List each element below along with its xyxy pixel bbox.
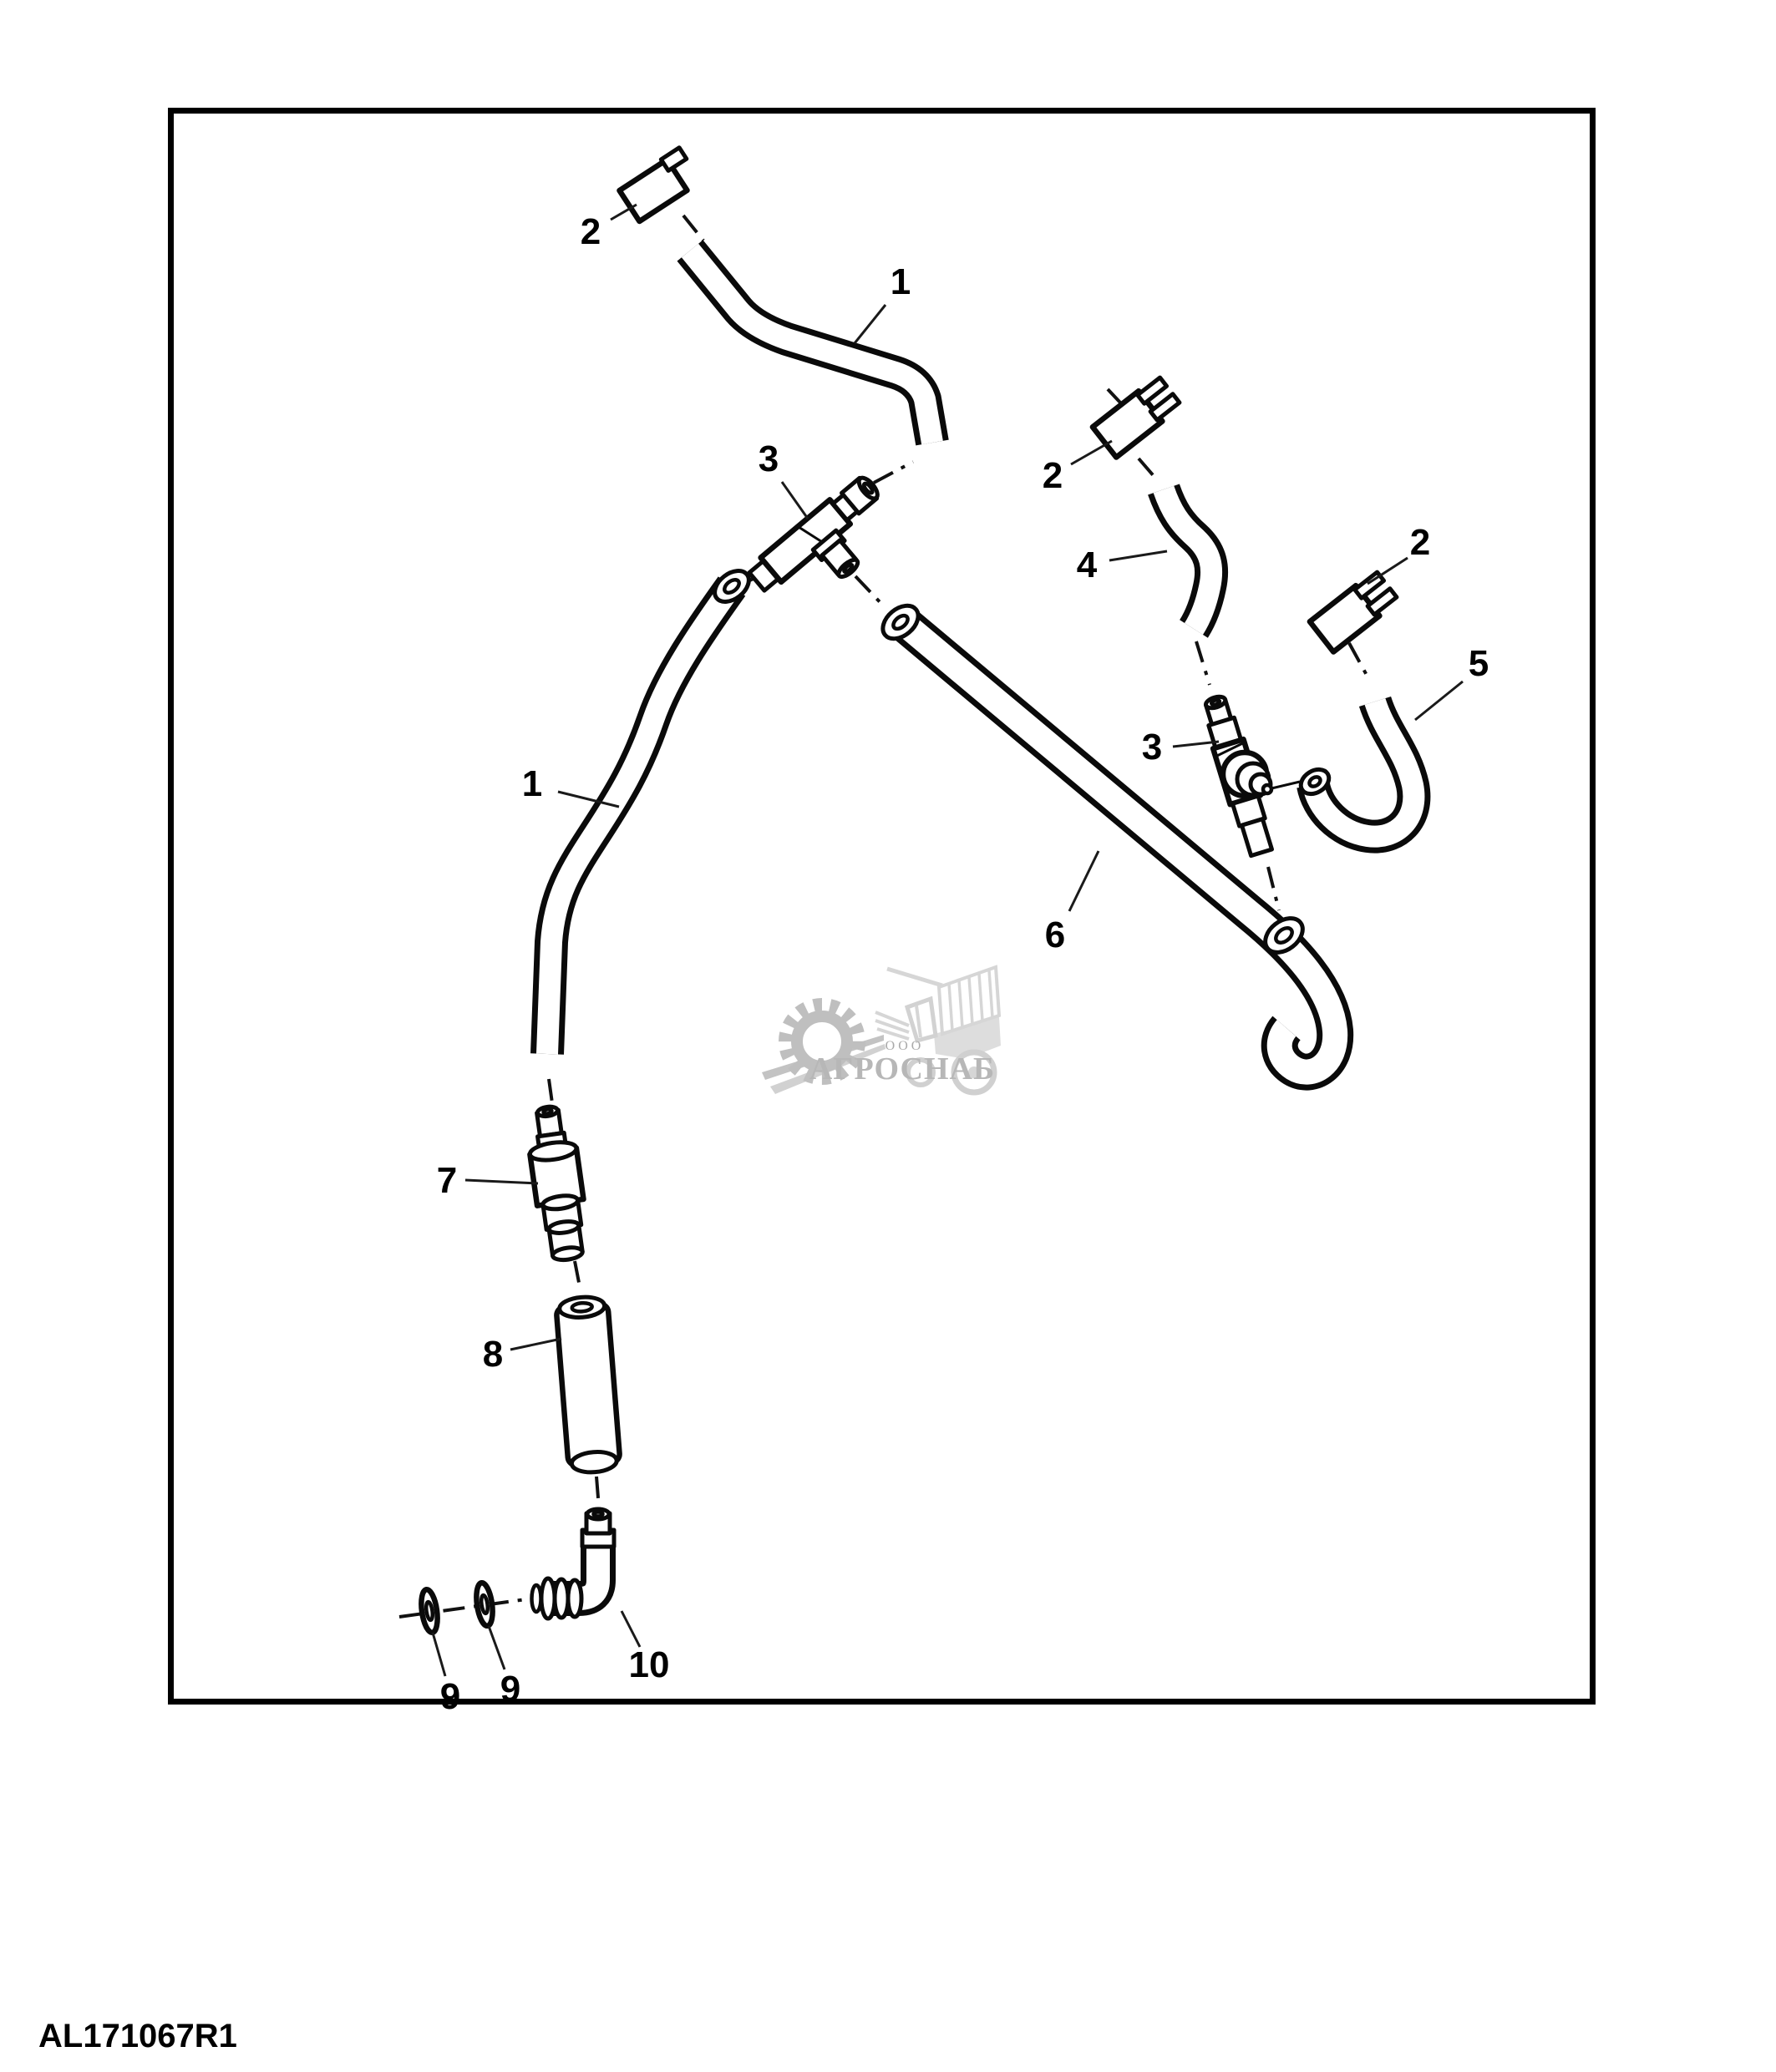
- dash-dot-line: [575, 1261, 581, 1291]
- cab-window-line: [916, 1006, 921, 1037]
- tee-bottom-stub: [1242, 819, 1272, 856]
- branch-connection-line: [1271, 782, 1300, 788]
- callout-4: 4: [1077, 545, 1098, 585]
- clip-body: [620, 160, 688, 221]
- callout-3-right: 3: [1142, 727, 1162, 768]
- callout-10: 10: [629, 1644, 670, 1685]
- elbow-top-bore: [594, 1512, 603, 1517]
- callout-1-upper: 1: [891, 261, 911, 302]
- hose-outline: [547, 586, 732, 1054]
- hose-5-hook: [1296, 702, 1414, 837]
- tee-tip-bore: [1211, 699, 1220, 706]
- elbow-port-opening: [532, 1585, 541, 1612]
- parts-diagram-page: ООО АГРОСНАБ: [0, 0, 1776, 2072]
- drawing-number: AL171067R1: [38, 2018, 237, 2054]
- hose-fill: [547, 586, 732, 1054]
- branch-tip: [1263, 785, 1271, 793]
- callout-7: 7: [437, 1160, 457, 1201]
- callout-2-top: 2: [581, 211, 601, 252]
- bin-slat: [989, 970, 992, 1017]
- clip-body: [1310, 585, 1379, 651]
- watermark-logo: ООО АГРОСНАБ: [762, 967, 1001, 1094]
- dash-dot-line: [683, 215, 703, 241]
- leader-line: [1368, 558, 1408, 584]
- dash-dot-line: [1139, 458, 1154, 477]
- tube-bottom-rim: [571, 1451, 617, 1474]
- clip-tab: [661, 148, 687, 171]
- tee-fitting-3-left: [747, 473, 907, 623]
- callout-6: 6: [1045, 914, 1065, 955]
- dash-dot-line: [1196, 641, 1210, 685]
- leader-line: [1071, 441, 1112, 464]
- bin-slat: [979, 974, 982, 1021]
- connector-top-bore: [543, 1109, 552, 1114]
- leader-line: [465, 1180, 538, 1183]
- callout-3-left: 3: [759, 438, 779, 479]
- leader-line: [1109, 551, 1167, 560]
- tube-top-bore: [571, 1302, 592, 1312]
- callout-5: 5: [1469, 643, 1489, 684]
- bin-slat: [949, 984, 952, 1031]
- washer-9-outer: [419, 1588, 439, 1634]
- callout-9-left: 9: [440, 1676, 460, 1717]
- dash-dot-line: [1108, 389, 1120, 403]
- dash-dot-line: [874, 462, 913, 483]
- callout-labels: 1 2 3 2 4 2 5 3 6 1 7 8 9 9 10: [437, 211, 1489, 1717]
- dash-dot-line: [1268, 867, 1279, 910]
- dash-dot-line: [855, 576, 885, 607]
- tee-fitting-3-right: [1199, 693, 1276, 858]
- hose-1-lower: [547, 565, 754, 1054]
- tube-body: [556, 1304, 621, 1466]
- callout-1-lower: 1: [522, 763, 542, 804]
- dash-dot-line: [549, 1079, 553, 1109]
- diagram-border-frame: [171, 111, 1593, 1702]
- callout-9-right: 9: [500, 1669, 520, 1710]
- callout-2-right: 2: [1410, 522, 1430, 563]
- tube-8: [556, 1295, 621, 1474]
- leader-line: [855, 305, 885, 343]
- hose-4-short: [1164, 489, 1211, 629]
- clip-2-top: [617, 148, 701, 221]
- watermark-org-name: АГРОСНАБ: [809, 1051, 995, 1087]
- bin-slat: [969, 977, 972, 1024]
- washer-9-inner: [474, 1582, 495, 1627]
- dash-dot-line: [1349, 643, 1368, 678]
- dash-dot-line: [596, 1477, 599, 1508]
- leader-line: [622, 1611, 640, 1647]
- washer-hole: [480, 1595, 489, 1614]
- leader-line: [782, 482, 808, 519]
- leader-line: [433, 1633, 445, 1676]
- bin-slat: [959, 980, 962, 1027]
- leader-line: [1173, 742, 1219, 747]
- unloader-auger: [887, 969, 942, 985]
- leader-line: [1069, 851, 1099, 911]
- elbow-fitting-10: [532, 1509, 615, 1619]
- elbow-rib: [541, 1578, 555, 1619]
- callout-2-middle: 2: [1043, 455, 1063, 496]
- washer-hole: [425, 1602, 434, 1621]
- leader-line: [489, 1626, 505, 1669]
- callout-8: 8: [483, 1334, 503, 1375]
- leader-line: [1415, 681, 1463, 720]
- clip-2-right: [1310, 570, 1399, 652]
- leader-line: [510, 1339, 561, 1350]
